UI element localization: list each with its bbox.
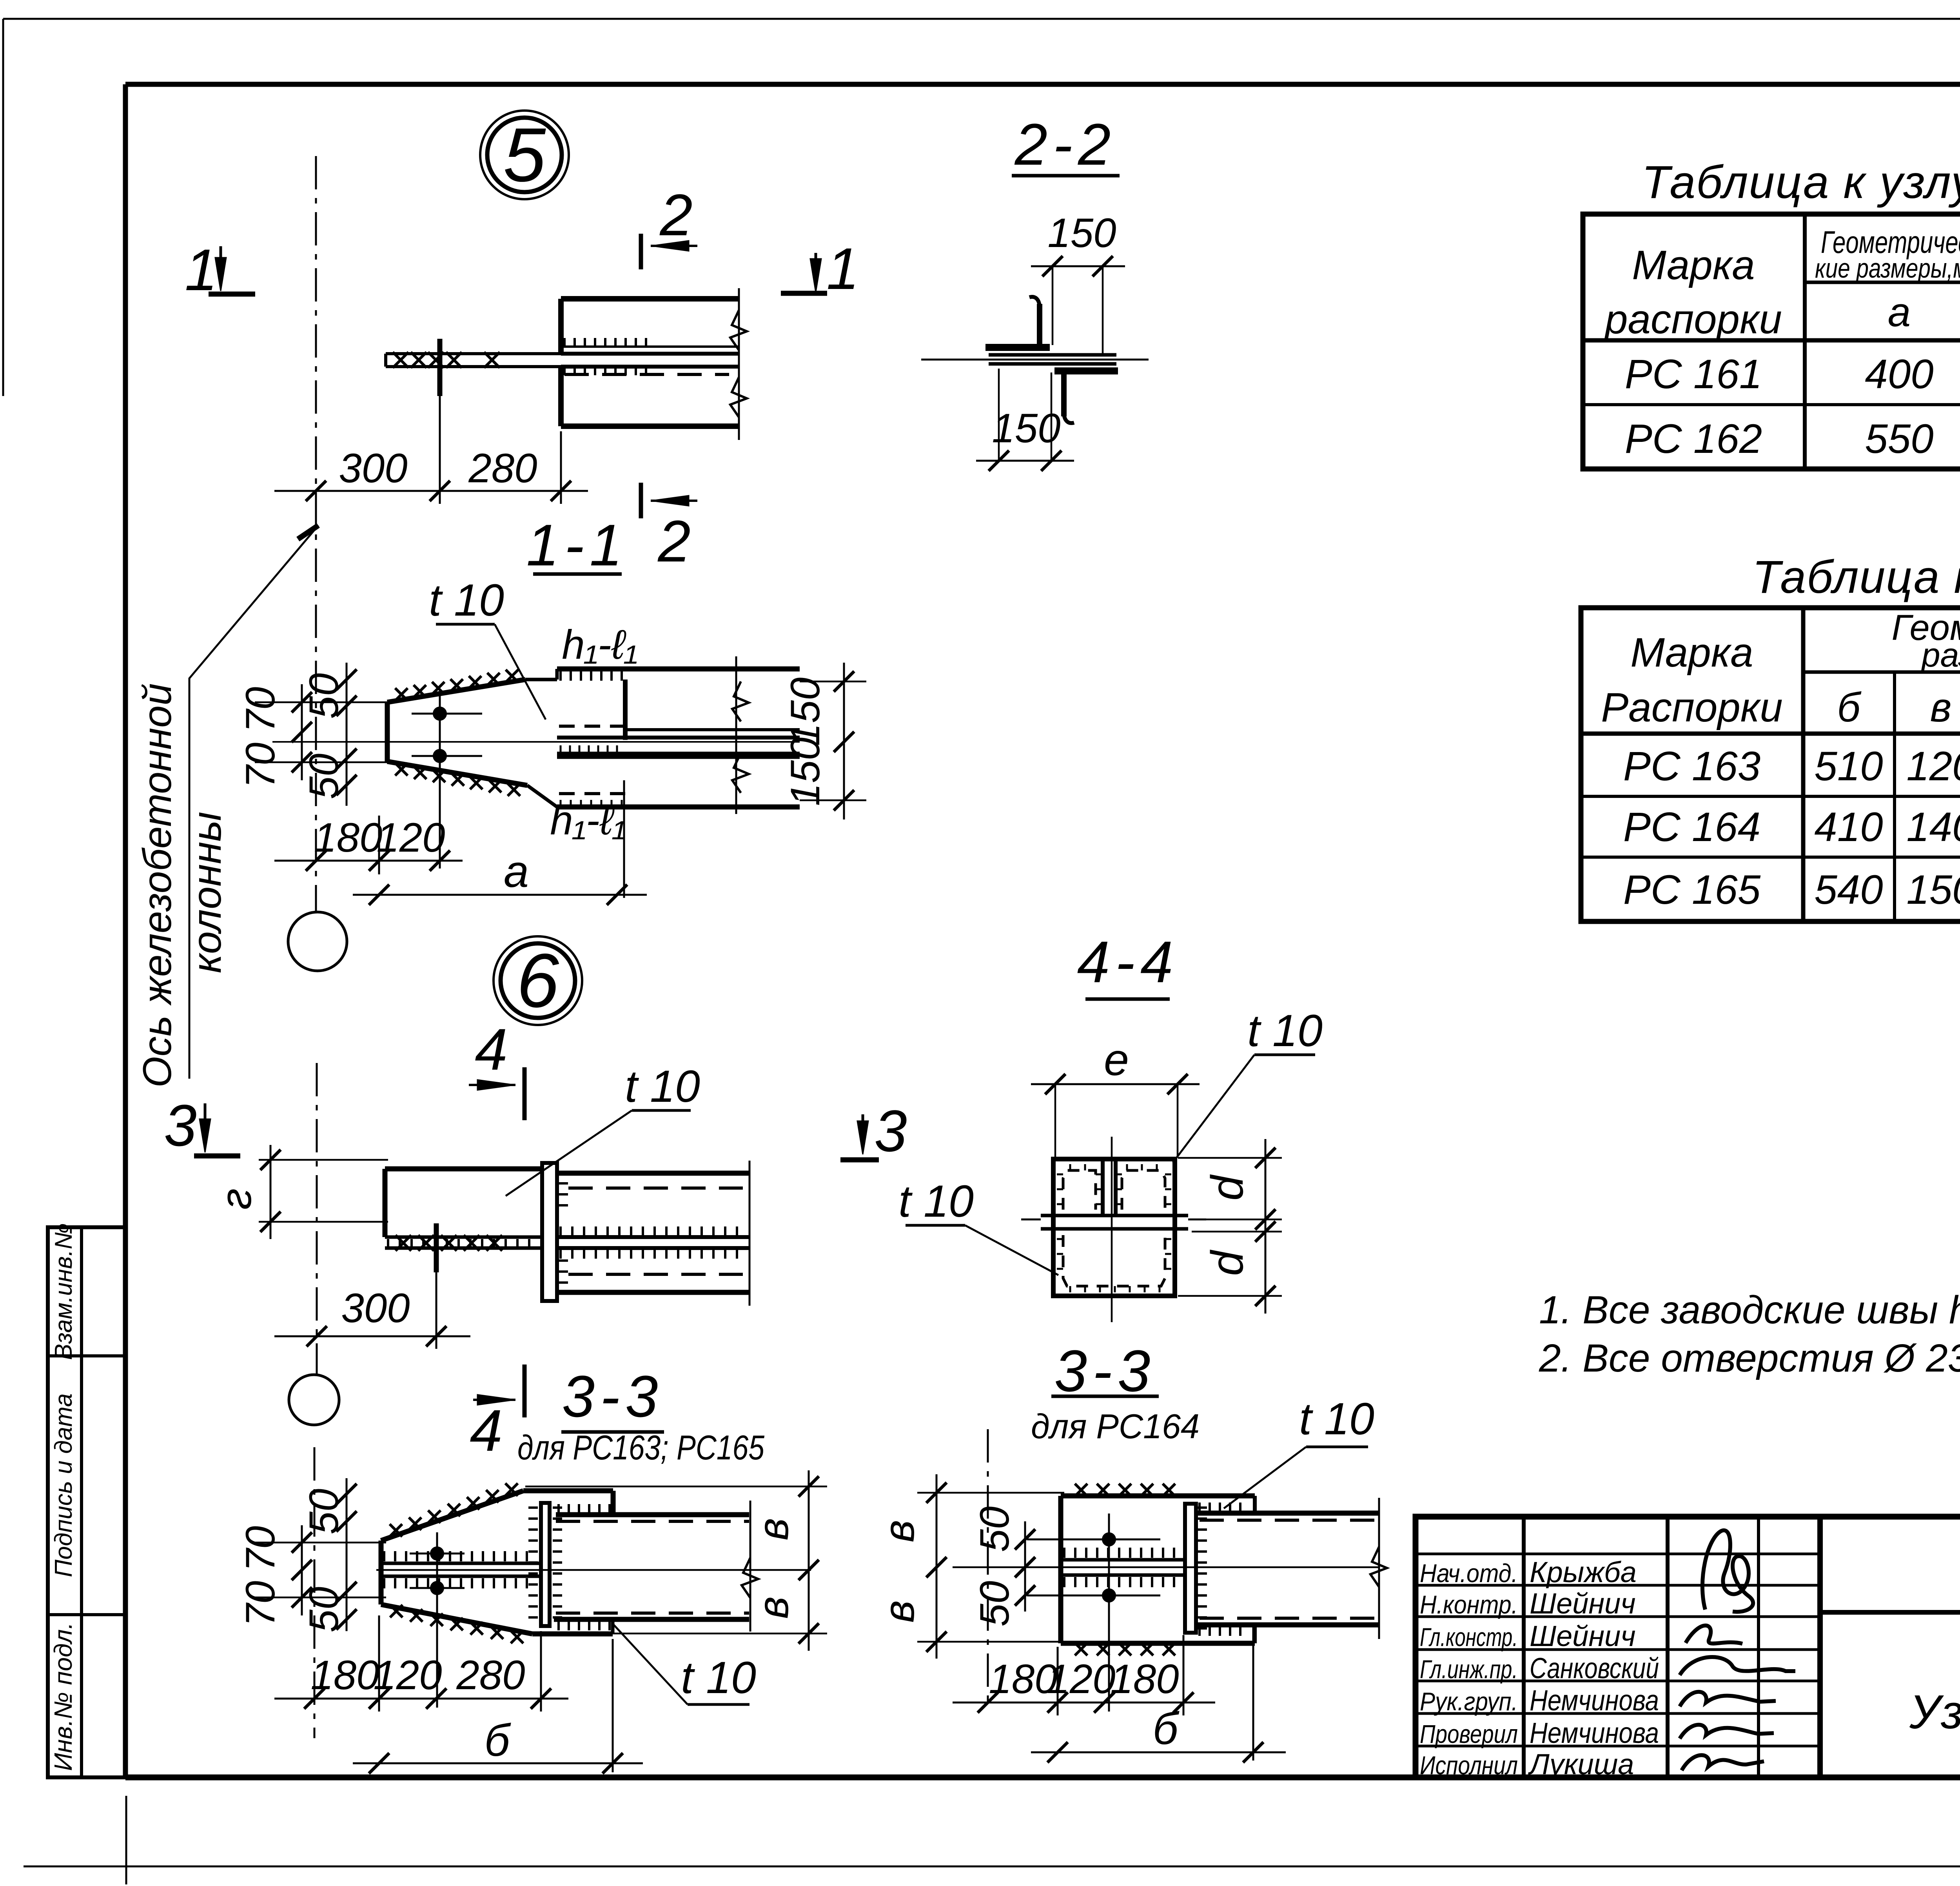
svg-text:510: 510 (1814, 743, 1883, 789)
svg-text:150: 150 (782, 677, 828, 746)
svg-text:кие размеры,мм: кие размеры,мм (1815, 253, 1960, 283)
svg-text:РС 165: РС 165 (1623, 867, 1761, 913)
svg-text:Таблица к узлу N6: Таблица к узлу N6 (1752, 551, 1960, 603)
svg-text:2: 2 (657, 508, 690, 574)
svg-text:Подпись и дата: Подпись и дата (50, 1394, 77, 1577)
svg-text:d: d (1202, 1250, 1252, 1276)
svg-text:70: 70 (238, 1581, 283, 1627)
svg-text:t 10: t 10 (1247, 1006, 1323, 1056)
svg-text:г: г (212, 1188, 260, 1210)
svg-text:550: 550 (1865, 416, 1933, 462)
svg-text:t 10: t 10 (625, 1061, 700, 1112)
svg-text:а: а (504, 847, 529, 897)
svg-text:150: 150 (1906, 867, 1960, 913)
svg-text:120: 120 (373, 1652, 442, 1698)
svg-text:Лукиша: Лукиша (1528, 1748, 1634, 1781)
svg-text:Нач.отд.: Нач.отд. (1420, 1559, 1518, 1588)
svg-text:РС 162: РС 162 (1625, 416, 1762, 462)
svg-text:70: 70 (238, 1526, 283, 1572)
svg-text:180: 180 (310, 1652, 379, 1698)
svg-text:Узел 5, 6: Узел 5, 6 (1909, 1685, 1960, 1739)
svg-text:150: 150 (782, 737, 828, 806)
svg-text:РС 163: РС 163 (1623, 743, 1760, 789)
svg-text:70: 70 (238, 743, 283, 789)
svg-text:Санковский: Санковский (1530, 1652, 1659, 1684)
svg-text:Рук.груп.: Рук.груп. (1420, 1687, 1518, 1716)
svg-text:180: 180 (314, 815, 382, 861)
svg-text:h₁-ℓ₁: h₁-ℓ₁ (562, 622, 638, 668)
svg-text:180: 180 (1110, 1656, 1179, 1702)
svg-text:300: 300 (339, 445, 407, 491)
svg-text:РС 161: РС 161 (1625, 351, 1762, 397)
svg-text:6: 6 (517, 938, 559, 1023)
svg-text:410: 410 (1814, 804, 1883, 850)
svg-text:150: 150 (992, 405, 1060, 451)
svg-text:4: 4 (475, 1016, 507, 1082)
svg-text:400: 400 (1865, 351, 1933, 397)
svg-text:120: 120 (376, 815, 445, 861)
svg-text:50: 50 (972, 1506, 1018, 1552)
svg-text:t 10: t 10 (898, 1176, 974, 1226)
svg-text:50: 50 (301, 673, 347, 719)
svg-text:1: 1 (826, 236, 859, 302)
svg-text:в: в (749, 1518, 797, 1540)
svg-text:50: 50 (301, 1489, 347, 1535)
svg-text:280: 280 (468, 445, 537, 491)
svg-text:70: 70 (238, 687, 283, 733)
svg-text:распорки: распорки (1604, 296, 1782, 342)
svg-text:Таблица к узлу N5: Таблица к узлу N5 (1642, 156, 1960, 208)
svg-text:120: 120 (1906, 743, 1960, 789)
svg-text:300: 300 (341, 1285, 410, 1331)
svg-text:3: 3 (164, 1092, 196, 1158)
svg-text:Гл.инж.пр.: Гл.инж.пр. (1420, 1655, 1518, 1684)
svg-text:t 10: t 10 (1299, 1394, 1374, 1444)
svg-text:Немчинова: Немчинова (1530, 1684, 1659, 1717)
svg-text:Марка: Марка (1630, 630, 1753, 676)
svg-text:РС 164: РС 164 (1623, 804, 1760, 850)
svg-text:1. Все заводские швы h = 6мм.: 1. Все заводские швы h = 6мм. (1539, 1288, 1960, 1332)
svg-text:2: 2 (659, 182, 692, 248)
svg-text:3: 3 (874, 1098, 907, 1164)
svg-text:размеры, мм: размеры, мм (1920, 636, 1960, 674)
svg-text:4-4: 4-4 (1077, 929, 1179, 995)
svg-text:1-1: 1-1 (526, 512, 628, 578)
svg-text:Марка: Марка (1632, 242, 1755, 288)
svg-text:Распорки: Распорки (1601, 685, 1782, 730)
svg-text:2. Все отверстия Ø 23 под болт: 2. Все отверстия Ø 23 под болты М20. (1539, 1336, 1960, 1380)
svg-text:3-3: 3-3 (1054, 1338, 1156, 1404)
svg-text:Инв.№ подл.: Инв.№ подл. (49, 1622, 77, 1771)
svg-text:б: б (1837, 685, 1862, 730)
svg-text:Немчинова: Немчинова (1530, 1717, 1659, 1749)
svg-text:в: в (1930, 685, 1952, 730)
svg-text:в: в (875, 1520, 923, 1542)
svg-text:280: 280 (456, 1652, 525, 1698)
svg-text:Проверил: Проверил (1420, 1719, 1518, 1748)
svg-text:Шейнич: Шейнич (1530, 1620, 1636, 1652)
svg-text:140: 140 (1906, 804, 1960, 850)
svg-text:150: 150 (1047, 210, 1116, 256)
svg-text:3-3: 3-3 (562, 1363, 664, 1429)
svg-text:б: б (1153, 1704, 1180, 1754)
svg-text:Н.контр.: Н.контр. (1420, 1590, 1518, 1619)
svg-text:е: е (1104, 1035, 1129, 1085)
svg-text:в: в (749, 1596, 797, 1619)
svg-text:колонны: колонны (184, 812, 230, 973)
svg-text:б: б (485, 1715, 512, 1766)
svg-text:а: а (1888, 289, 1911, 335)
svg-text:Крыжба: Крыжба (1530, 1556, 1637, 1588)
svg-text:для РС164: для РС164 (1031, 1407, 1200, 1446)
svg-text:Гл.констр.: Гл.констр. (1420, 1623, 1518, 1652)
svg-text:4: 4 (470, 1397, 502, 1463)
svg-text:50: 50 (972, 1581, 1018, 1627)
svg-text:50: 50 (301, 1587, 347, 1633)
svg-text:50: 50 (301, 754, 347, 799)
svg-text:для РС163; РС165: для РС163; РС165 (517, 1428, 765, 1467)
svg-text:t 10: t 10 (681, 1653, 756, 1703)
svg-text:120: 120 (1047, 1656, 1115, 1702)
svg-text:в: в (875, 1600, 923, 1623)
svg-text:t 10: t 10 (429, 575, 504, 625)
svg-text:Взам.инв.№: Взам.инв.№ (50, 1223, 77, 1360)
svg-text:5: 5 (503, 112, 546, 198)
svg-text:Ось железобетонной: Ось железобетонной (135, 683, 180, 1087)
svg-text:540: 540 (1814, 867, 1883, 913)
svg-text:Исполнил: Исполнил (1420, 1751, 1518, 1780)
svg-text:h₁-ℓ₁: h₁-ℓ₁ (550, 798, 626, 843)
svg-text:d: d (1202, 1174, 1252, 1201)
svg-text:2-2: 2-2 (1014, 111, 1116, 177)
svg-text:Шейнич: Шейнич (1530, 1587, 1636, 1620)
